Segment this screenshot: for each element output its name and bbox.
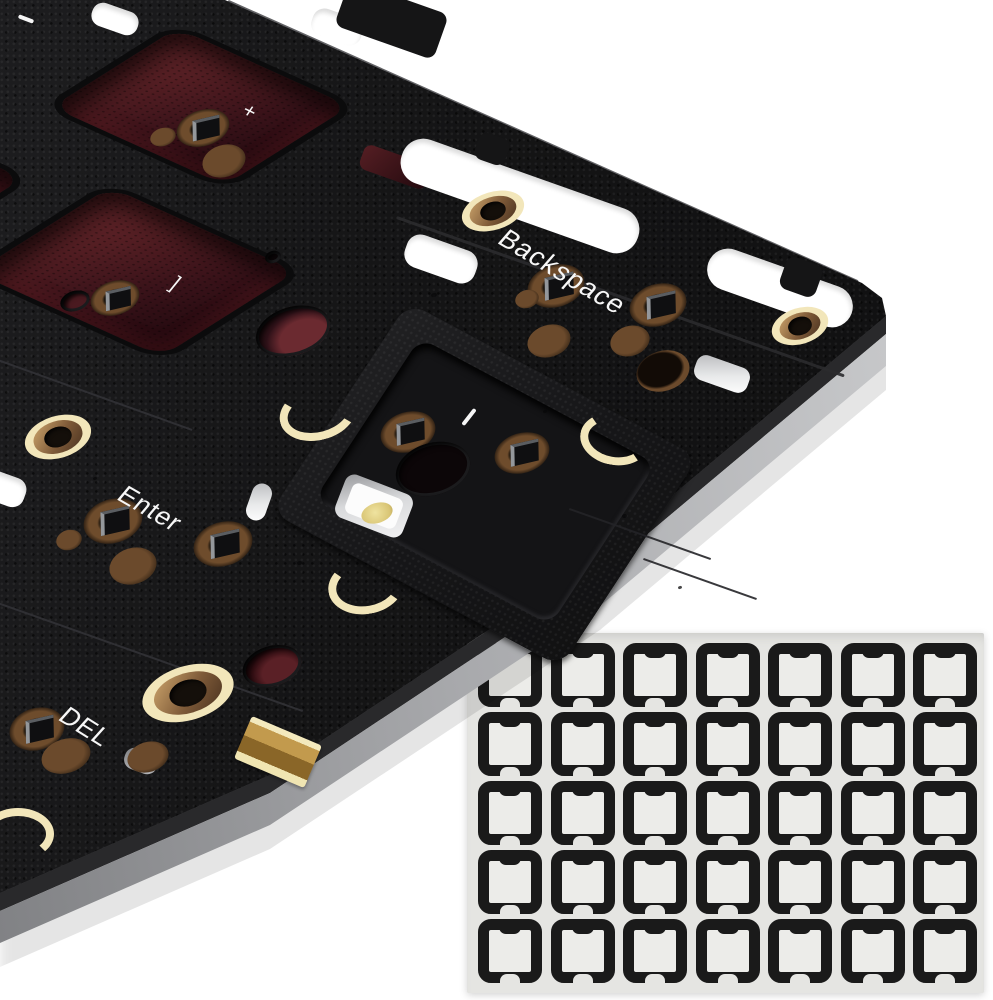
switch-pad-sticker [478, 850, 542, 914]
switch-pad-sticker [551, 919, 615, 983]
switch-pad-sticker [768, 850, 832, 914]
switch-pad-sticker [623, 919, 687, 983]
sticker-sheet [467, 633, 984, 993]
switch-pad-sticker [841, 919, 905, 983]
switch-pad-sticker [841, 781, 905, 845]
plate-corner-piece [334, 0, 449, 60]
switch-pad-sticker [551, 850, 615, 914]
switch-pad-sticker [623, 781, 687, 845]
switch-pad-sticker [913, 850, 977, 914]
switch-pad-sticker [913, 919, 977, 983]
switch-pad-sticker [696, 712, 760, 776]
switch-pad-sticker [551, 781, 615, 845]
pcb-dot [678, 585, 683, 589]
switch-pad-sticker [768, 781, 832, 845]
switch-pad-sticker [623, 712, 687, 776]
switch-pad-sticker [696, 850, 760, 914]
switch-pad-sticker [478, 919, 542, 983]
switch-pad-sticker [623, 850, 687, 914]
switch-pad-sticker [696, 781, 760, 845]
switch-pad-sticker [696, 643, 760, 707]
switch-pad-sticker [551, 712, 615, 776]
switch-pad-sticker [768, 712, 832, 776]
switch-pad-sticker [478, 712, 542, 776]
switch-pad-sticker [478, 781, 542, 845]
switch-pad-sticker [623, 643, 687, 707]
switch-pad-sticker [913, 781, 977, 845]
switch-pad-sticker [913, 712, 977, 776]
product-photo-scene: Backspace Enter DEL + ] [0, 0, 993, 1000]
switch-pad-sticker [696, 919, 760, 983]
switch-pad-sticker [841, 643, 905, 707]
switch-pad-sticker [768, 919, 832, 983]
switch-pad-sticker [913, 643, 977, 707]
switch-pad-sticker [841, 850, 905, 914]
switch-pad-sticker [768, 643, 832, 707]
switch-pad-sticker [841, 712, 905, 776]
